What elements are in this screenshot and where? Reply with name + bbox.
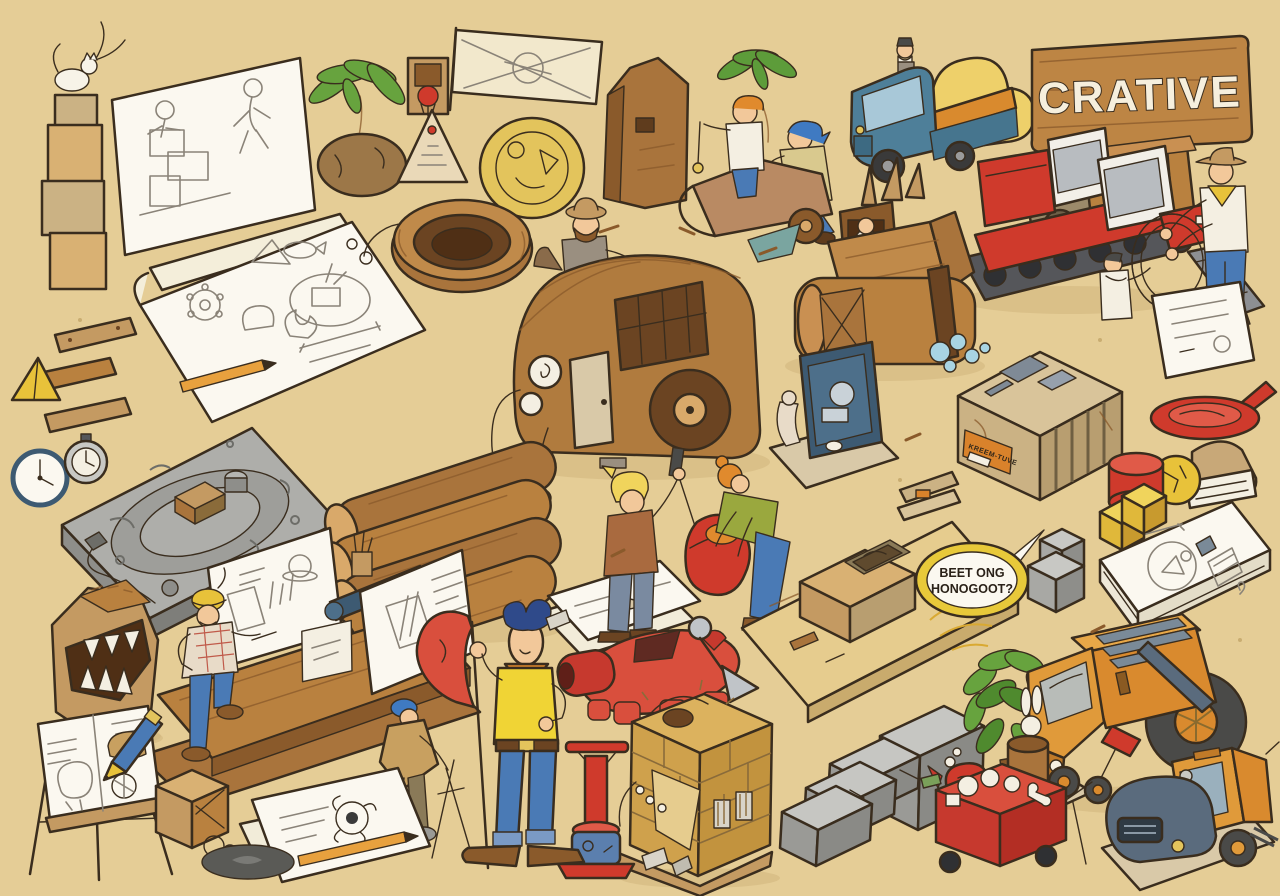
paper-sheet-right xyxy=(1152,282,1254,378)
illustration-stage: CRATIVE xyxy=(0,0,1280,896)
wall-clock xyxy=(13,451,67,505)
tar-puddle xyxy=(202,845,294,879)
basketball-hoop xyxy=(408,58,448,116)
speech-bubble-line2: HONOGOOT? xyxy=(931,582,1013,596)
engraved-coin xyxy=(480,118,584,218)
speech-bubble-line1: BEET ONG xyxy=(939,566,1004,580)
crative-sign: CRATIVE xyxy=(1032,36,1252,152)
illustration-canvas: CRATIVE xyxy=(0,0,1280,896)
sign-text: CRATIVE xyxy=(1037,67,1242,123)
